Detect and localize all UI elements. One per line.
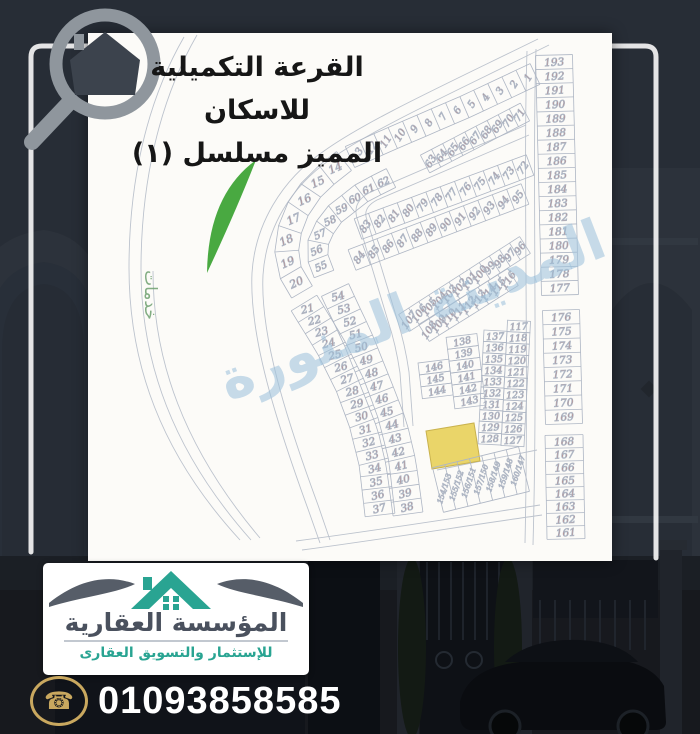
plot-number: 175 <box>551 326 572 339</box>
plot-number: 174 <box>552 340 573 353</box>
plot-number: 1 <box>522 72 535 83</box>
highlighted-plot <box>426 423 480 469</box>
plot-number: 77 <box>444 186 461 203</box>
plot-number: 46 <box>373 392 390 407</box>
plot-grid-block-a: 1371361351341331321311301291281171181191… <box>478 319 531 448</box>
phone-icon: ☎ <box>30 676 88 726</box>
plot-number: 167 <box>554 449 575 462</box>
plot-number: 20 <box>287 274 306 292</box>
plot-number: 57 <box>312 227 329 242</box>
plot-strip-right-col-c: 168167166165164163162161 <box>545 435 585 540</box>
plot-number: 5 <box>466 99 479 110</box>
plot-number: 192 <box>544 70 565 83</box>
plot-number: 18 <box>277 232 295 250</box>
plot-number: 16 <box>296 191 314 209</box>
brand-logo-card: المؤسسة العقارية للإستثمار والتسويق العق… <box>43 563 309 675</box>
plot-number: 187 <box>546 141 567 154</box>
plot-number: 184 <box>547 183 568 196</box>
plot-number: 166 <box>554 462 575 475</box>
plot-number: 19 <box>279 254 297 272</box>
plot-number: 170 <box>553 397 574 410</box>
plot-number: 164 <box>555 488 576 501</box>
plot-number: 190 <box>545 99 566 112</box>
plot-number: 169 <box>554 411 575 424</box>
plot-number: 127 <box>503 435 523 447</box>
plot-number: 176 <box>551 311 572 324</box>
plot-number: 3 <box>494 86 507 97</box>
plot-number: 86 <box>381 238 398 255</box>
title-line-1: القرعة التكميلية للاسكان <box>96 46 418 132</box>
brand-tagline: للإستثمار والتسويق العقارى <box>79 645 272 661</box>
plot-number: 165 <box>555 475 576 488</box>
plot-number: 76 <box>458 181 475 198</box>
plot-number: 61 <box>361 183 377 198</box>
plot-grid-block-b: 146145144138139140141142143 <box>415 334 485 414</box>
plot-number: 2 <box>508 79 521 91</box>
plot-number: 58 <box>322 214 338 229</box>
plot-number: 168 <box>554 436 575 449</box>
brand-name: المؤسسة العقارية <box>65 609 288 637</box>
plot-number: 45 <box>378 405 395 420</box>
brand-divider <box>64 640 288 642</box>
plot-strip-right-col-b: 176175174173172171170169 <box>543 310 583 425</box>
plot-number: 7 <box>437 111 450 123</box>
plot-number: 162 <box>555 514 576 527</box>
plot-number: 172 <box>552 368 573 381</box>
plot-number: 188 <box>546 127 567 140</box>
plot-number: 173 <box>552 354 573 367</box>
plot-number: 6 <box>452 105 465 117</box>
plot-number: 161 <box>556 527 577 540</box>
plot-number: 89 <box>424 221 441 238</box>
plot-number: 47 <box>368 379 385 394</box>
title-line-2: المميز مسلسل (١) <box>96 132 418 175</box>
roofline-logo-icon <box>43 563 309 611</box>
plot-number: 48 <box>363 366 380 381</box>
poster-title: القرعة التكميلية للاسكان المميز مسلسل (١… <box>96 46 418 175</box>
plot-number: 193 <box>544 56 565 69</box>
phone-number: 01093858585 <box>98 680 341 723</box>
plot-number: 191 <box>545 84 566 97</box>
plot-number: 4 <box>480 92 493 104</box>
plot-number: 163 <box>555 501 576 514</box>
services-label: خدمات <box>140 270 160 320</box>
plot-number: 8 <box>423 117 436 128</box>
plot-number: 80 <box>401 202 418 219</box>
plot-number: 79 <box>415 197 432 214</box>
park-crescent <box>207 160 256 273</box>
plot-strip-arc-inner-a: 717069686766656463 <box>420 103 529 173</box>
plot-number: 128 <box>481 434 500 446</box>
plot-number: 90 <box>438 216 455 233</box>
plot-number: 17 <box>285 210 303 228</box>
plot-number: 186 <box>546 155 567 168</box>
plot-number: 189 <box>545 113 566 126</box>
phone-row: ☎ 01093858585 <box>30 676 341 726</box>
poster: 1234567891011121314151617181920717069686… <box>0 0 700 734</box>
plot-number: 171 <box>553 383 574 396</box>
plot-number: 183 <box>547 197 568 210</box>
plot-number: 15 <box>309 173 327 191</box>
plot-number: 62 <box>376 175 392 190</box>
plot-number: 87 <box>395 232 412 249</box>
plot-number: 185 <box>547 169 568 182</box>
